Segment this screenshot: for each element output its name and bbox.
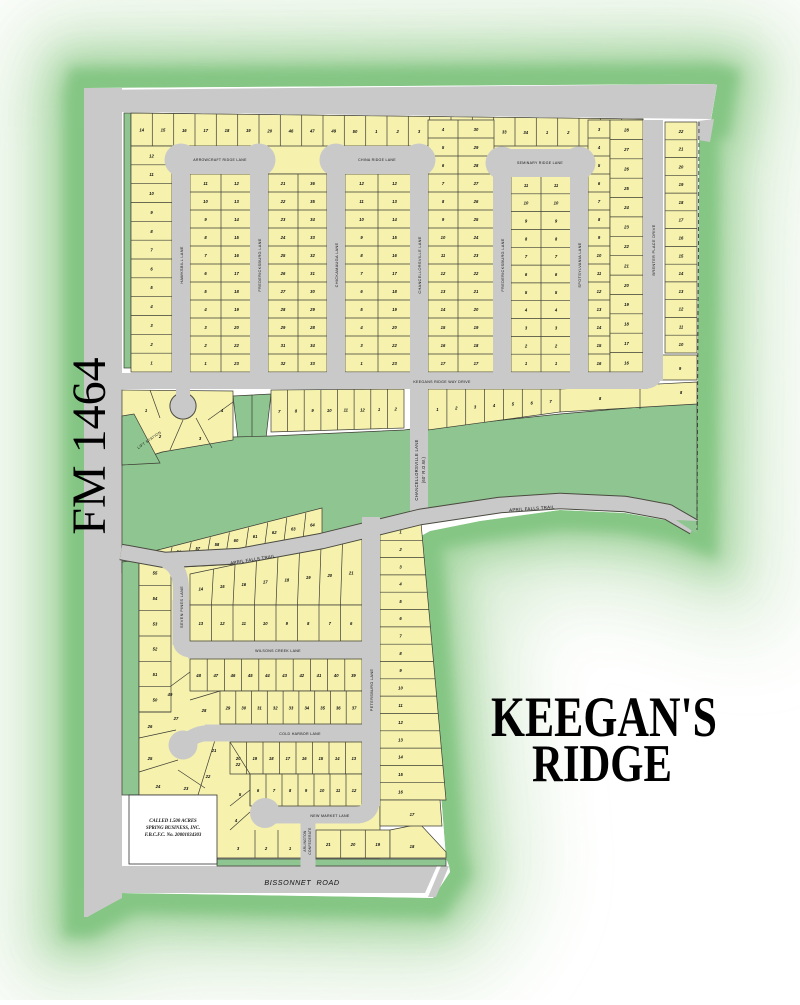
svg-text:21: 21 — [280, 181, 286, 186]
svg-text:16: 16 — [624, 360, 629, 365]
svg-text:19: 19 — [392, 307, 397, 312]
svg-text:27: 27 — [280, 289, 286, 294]
svg-text:55: 55 — [153, 571, 158, 576]
svg-text:35: 35 — [310, 199, 315, 204]
svg-text:23: 23 — [623, 225, 629, 230]
svg-text:26: 26 — [473, 199, 479, 204]
svg-text:46: 46 — [288, 128, 294, 133]
svg-text:21: 21 — [623, 263, 629, 268]
svg-text:43: 43 — [281, 673, 287, 678]
svg-text:CONFEDERATE: CONFEDERATE — [308, 827, 312, 854]
svg-text:27: 27 — [623, 147, 629, 152]
svg-text:14: 14 — [139, 128, 144, 133]
svg-text:61: 61 — [253, 534, 258, 539]
svg-text:16: 16 — [302, 756, 307, 761]
svg-text:29: 29 — [225, 706, 231, 711]
svg-text:13: 13 — [597, 307, 602, 312]
svg-text:14: 14 — [441, 307, 446, 312]
svg-text:12: 12 — [597, 289, 602, 294]
svg-text:33: 33 — [289, 706, 294, 711]
svg-text:10: 10 — [398, 686, 403, 691]
svg-text:18: 18 — [234, 289, 239, 294]
svg-text:19: 19 — [474, 325, 479, 330]
svg-text:18: 18 — [474, 343, 479, 348]
svg-text:22: 22 — [473, 271, 479, 276]
svg-text:FM 1464: FM 1464 — [63, 357, 116, 534]
svg-text:20: 20 — [350, 842, 356, 847]
svg-text:CHINA RIDGE LANE: CHINA RIDGE LANE — [358, 158, 396, 162]
svg-text:PETERSBURG LANE: PETERSBURG LANE — [369, 669, 374, 712]
svg-text:48: 48 — [195, 673, 201, 678]
svg-text:11: 11 — [398, 703, 403, 708]
svg-text:23: 23 — [473, 253, 479, 258]
svg-text:18: 18 — [392, 289, 397, 294]
svg-text:SEVEN PINES LANE: SEVEN PINES LANE — [179, 586, 184, 628]
svg-text:15: 15 — [441, 325, 446, 330]
svg-text:BRENTER PLACE DRIVE: BRENTER PLACE DRIVE — [651, 224, 656, 275]
svg-text:19: 19 — [252, 756, 257, 761]
svg-text:12: 12 — [360, 407, 365, 412]
svg-text:20: 20 — [233, 325, 239, 330]
svg-text:11: 11 — [359, 199, 364, 204]
svg-text:18: 18 — [624, 322, 629, 327]
svg-text:60: 60 — [234, 538, 239, 543]
svg-text:11: 11 — [554, 183, 559, 188]
svg-text:34: 34 — [523, 130, 528, 135]
svg-text:13: 13 — [234, 199, 239, 204]
svg-text:17: 17 — [263, 580, 268, 585]
svg-text:16: 16 — [241, 582, 246, 587]
svg-text:54: 54 — [153, 596, 158, 601]
svg-text:13: 13 — [198, 621, 203, 626]
svg-text:22: 22 — [391, 343, 397, 348]
svg-text:NEW MARKET LANE: NEW MARKET LANE — [310, 814, 349, 818]
svg-text:49: 49 — [167, 692, 173, 697]
svg-text:32: 32 — [273, 706, 278, 711]
svg-text:50: 50 — [353, 129, 358, 134]
svg-text:10: 10 — [149, 191, 154, 196]
svg-text:31: 31 — [281, 343, 286, 348]
svg-text:10: 10 — [554, 201, 559, 206]
svg-text:11: 11 — [242, 621, 247, 626]
svg-text:28: 28 — [201, 708, 207, 713]
svg-text:30: 30 — [474, 127, 479, 132]
svg-text:24: 24 — [155, 784, 161, 789]
svg-text:FREDERICKSBURG LANE: FREDERICKSBURG LANE — [257, 238, 262, 291]
svg-text:14: 14 — [198, 586, 203, 591]
svg-text:14: 14 — [335, 756, 340, 761]
svg-text:22: 22 — [623, 244, 629, 249]
svg-text:14: 14 — [392, 217, 397, 222]
svg-text:30: 30 — [241, 706, 246, 711]
svg-text:18: 18 — [284, 577, 289, 582]
svg-text:31: 31 — [257, 706, 262, 711]
svg-text:28: 28 — [623, 128, 629, 133]
svg-text:16: 16 — [392, 253, 397, 258]
svg-text:22: 22 — [233, 343, 239, 348]
svg-text:15: 15 — [679, 253, 684, 258]
svg-text:39: 39 — [351, 673, 356, 678]
svg-text:18: 18 — [410, 844, 415, 849]
svg-text:35: 35 — [320, 706, 325, 711]
svg-text:12: 12 — [352, 788, 357, 793]
svg-text:21: 21 — [348, 571, 354, 576]
svg-text:13: 13 — [679, 289, 684, 294]
svg-text:27: 27 — [473, 181, 479, 186]
svg-text:14: 14 — [679, 271, 684, 276]
svg-text:26: 26 — [280, 271, 286, 276]
svg-text:23: 23 — [233, 361, 239, 366]
svg-text:13: 13 — [441, 289, 446, 294]
svg-text:17: 17 — [624, 341, 629, 346]
svg-text:63: 63 — [291, 526, 296, 531]
svg-text:11: 11 — [149, 172, 154, 177]
svg-text:11: 11 — [203, 181, 208, 186]
svg-text:34: 34 — [304, 706, 309, 711]
svg-text:32: 32 — [310, 253, 315, 258]
svg-text:19: 19 — [624, 302, 629, 307]
svg-text:33: 33 — [310, 235, 315, 240]
svg-text:11: 11 — [597, 271, 602, 276]
svg-text:14: 14 — [398, 755, 403, 760]
svg-text:40: 40 — [333, 673, 339, 678]
svg-text:F.B.C.F.C. No. 20001034303: F.B.C.F.C. No. 20001034303 — [145, 833, 202, 838]
svg-text:19: 19 — [375, 842, 380, 847]
svg-text:SEMINARY RIDGE LANE: SEMINARY RIDGE LANE — [517, 161, 563, 165]
svg-text:16: 16 — [398, 789, 403, 794]
svg-text:28: 28 — [473, 163, 479, 168]
svg-text:34: 34 — [310, 343, 315, 348]
svg-text:12: 12 — [359, 181, 364, 186]
svg-text:28: 28 — [280, 307, 286, 312]
svg-text:25: 25 — [147, 756, 153, 761]
svg-text:10: 10 — [524, 201, 529, 206]
svg-text:11: 11 — [441, 253, 446, 258]
svg-text:(60' R.O.W.): (60' R.O.W.) — [421, 456, 426, 483]
svg-text:27: 27 — [173, 716, 179, 721]
svg-text:17: 17 — [474, 361, 479, 366]
svg-text:16: 16 — [679, 236, 684, 241]
svg-text:32: 32 — [281, 361, 286, 366]
svg-text:18: 18 — [225, 128, 230, 133]
svg-text:21: 21 — [325, 842, 331, 847]
svg-text:42: 42 — [298, 673, 304, 678]
svg-text:14: 14 — [597, 325, 602, 330]
svg-text:41: 41 — [316, 673, 322, 678]
svg-text:12: 12 — [398, 720, 403, 725]
svg-text:CALLED 1.500 ACRES: CALLED 1.500 ACRES — [149, 819, 197, 824]
svg-text:15: 15 — [398, 772, 403, 777]
svg-text:22: 22 — [678, 129, 684, 134]
svg-text:25: 25 — [280, 253, 286, 258]
svg-text:37: 37 — [352, 706, 357, 711]
svg-text:30: 30 — [310, 289, 315, 294]
svg-text:16: 16 — [597, 361, 602, 366]
svg-text:SPOTSYLVANIA LANE: SPOTSYLVANIA LANE — [577, 242, 582, 287]
svg-text:21: 21 — [211, 748, 217, 753]
svg-text:44: 44 — [264, 673, 270, 678]
svg-text:25: 25 — [623, 186, 629, 191]
svg-text:49: 49 — [330, 129, 336, 134]
svg-text:11: 11 — [679, 324, 684, 329]
svg-text:BISSONNET ROAD: BISSONNET ROAD — [264, 878, 339, 887]
svg-text:23: 23 — [280, 217, 286, 222]
svg-text:CHANCELLORSVILLE LANE: CHANCELLORSVILLE LANE — [414, 439, 419, 500]
svg-text:22: 22 — [235, 762, 241, 767]
svg-text:20: 20 — [678, 164, 684, 169]
svg-text:10: 10 — [327, 408, 332, 413]
svg-text:13: 13 — [392, 199, 397, 204]
svg-text:17: 17 — [234, 271, 239, 276]
svg-text:24: 24 — [473, 235, 479, 240]
svg-text:16: 16 — [182, 128, 187, 133]
svg-text:11: 11 — [344, 408, 349, 413]
svg-text:23: 23 — [183, 786, 189, 791]
svg-text:10: 10 — [203, 199, 208, 204]
svg-text:12: 12 — [679, 307, 684, 312]
svg-text:15: 15 — [392, 235, 397, 240]
svg-text:53: 53 — [153, 621, 158, 626]
svg-text:13: 13 — [398, 737, 403, 742]
svg-text:34: 34 — [310, 217, 315, 222]
svg-text:SPRING BUSINESS, INC.: SPRING BUSINESS, INC. — [146, 826, 200, 831]
svg-text:22: 22 — [205, 774, 211, 779]
svg-text:10: 10 — [263, 621, 268, 626]
svg-text:10: 10 — [597, 253, 602, 258]
svg-text:15: 15 — [318, 756, 323, 761]
svg-text:24: 24 — [623, 205, 629, 210]
svg-text:12: 12 — [220, 621, 225, 626]
svg-text:17: 17 — [392, 271, 397, 276]
svg-text:15: 15 — [220, 584, 225, 589]
svg-text:24: 24 — [280, 235, 286, 240]
svg-text:20: 20 — [623, 283, 629, 288]
svg-text:18: 18 — [269, 756, 274, 761]
svg-text:17: 17 — [410, 812, 415, 817]
svg-text:19: 19 — [234, 307, 239, 312]
svg-text:58: 58 — [215, 542, 220, 547]
svg-text:15: 15 — [597, 343, 602, 348]
svg-text:19: 19 — [246, 128, 251, 133]
svg-text:COLD HARBOR LANE: COLD HARBOR LANE — [279, 732, 321, 736]
svg-text:25: 25 — [473, 217, 479, 222]
svg-text:29: 29 — [280, 325, 286, 330]
svg-text:45: 45 — [247, 673, 253, 678]
svg-text:19: 19 — [679, 182, 684, 187]
svg-text:20: 20 — [326, 573, 332, 578]
svg-text:WILSONS CREEK LANE: WILSONS CREEK LANE — [255, 649, 301, 653]
svg-text:12: 12 — [392, 181, 397, 186]
svg-text:23: 23 — [391, 361, 397, 366]
svg-text:13: 13 — [351, 756, 356, 761]
svg-text:20: 20 — [266, 128, 272, 133]
svg-text:29: 29 — [309, 307, 315, 312]
svg-text:51: 51 — [153, 672, 158, 677]
svg-text:10: 10 — [679, 342, 684, 347]
svg-text:12: 12 — [149, 153, 154, 158]
svg-text:20: 20 — [391, 325, 397, 330]
svg-text:15: 15 — [161, 128, 166, 133]
svg-text:46: 46 — [230, 673, 236, 678]
svg-text:26: 26 — [623, 167, 629, 172]
svg-text:21: 21 — [678, 147, 684, 152]
svg-text:17: 17 — [203, 128, 208, 133]
svg-text:17: 17 — [285, 756, 290, 761]
svg-text:33: 33 — [502, 130, 507, 135]
svg-text:20: 20 — [473, 307, 479, 312]
svg-text:47: 47 — [212, 673, 218, 678]
svg-text:17: 17 — [441, 361, 446, 366]
svg-text:22: 22 — [280, 199, 286, 204]
svg-text:11: 11 — [336, 788, 341, 793]
svg-text:18: 18 — [679, 200, 684, 205]
svg-text:36: 36 — [310, 181, 315, 186]
svg-text:16: 16 — [234, 253, 239, 258]
svg-text:21: 21 — [473, 289, 479, 294]
svg-text:ARROWCRAFT RIDGE LANE: ARROWCRAFT RIDGE LANE — [193, 158, 247, 162]
svg-text:12: 12 — [234, 181, 239, 186]
svg-text:KEEGANS RIDGE WAY DRIVE: KEEGANS RIDGE WAY DRIVE — [413, 380, 471, 384]
svg-text:28: 28 — [309, 325, 315, 330]
svg-text:RIDGE: RIDGE — [532, 735, 672, 793]
svg-text:29: 29 — [473, 145, 479, 150]
svg-text:10: 10 — [441, 235, 446, 240]
svg-text:31: 31 — [310, 271, 315, 276]
svg-text:17: 17 — [679, 218, 684, 223]
svg-text:52: 52 — [153, 647, 158, 652]
svg-text:CHANCELLORSVILLE LANE: CHANCELLORSVILLE LANE — [417, 236, 422, 293]
svg-text:26: 26 — [147, 724, 153, 729]
svg-text:15: 15 — [234, 235, 239, 240]
svg-text:62: 62 — [272, 530, 277, 535]
svg-text:ARLINGTON: ARLINGTON — [303, 830, 307, 852]
svg-text:14: 14 — [234, 217, 239, 222]
svg-text:11: 11 — [524, 183, 529, 188]
svg-text:19: 19 — [306, 575, 311, 580]
svg-text:CHICKAMAUGA LANE: CHICKAMAUGA LANE — [334, 242, 339, 287]
svg-text:47: 47 — [309, 129, 315, 134]
svg-text:HAWKSBILL LANE: HAWKSBILL LANE — [179, 246, 184, 284]
svg-text:64: 64 — [310, 522, 315, 527]
svg-text:16: 16 — [441, 343, 446, 348]
svg-text:50: 50 — [153, 697, 158, 702]
svg-text:10: 10 — [320, 788, 325, 793]
svg-text:FREDERICKSBURG LANE: FREDERICKSBURG LANE — [500, 238, 505, 291]
svg-text:12: 12 — [441, 271, 446, 276]
svg-text:36: 36 — [336, 706, 341, 711]
svg-text:33: 33 — [310, 361, 315, 366]
svg-text:10: 10 — [359, 217, 364, 222]
